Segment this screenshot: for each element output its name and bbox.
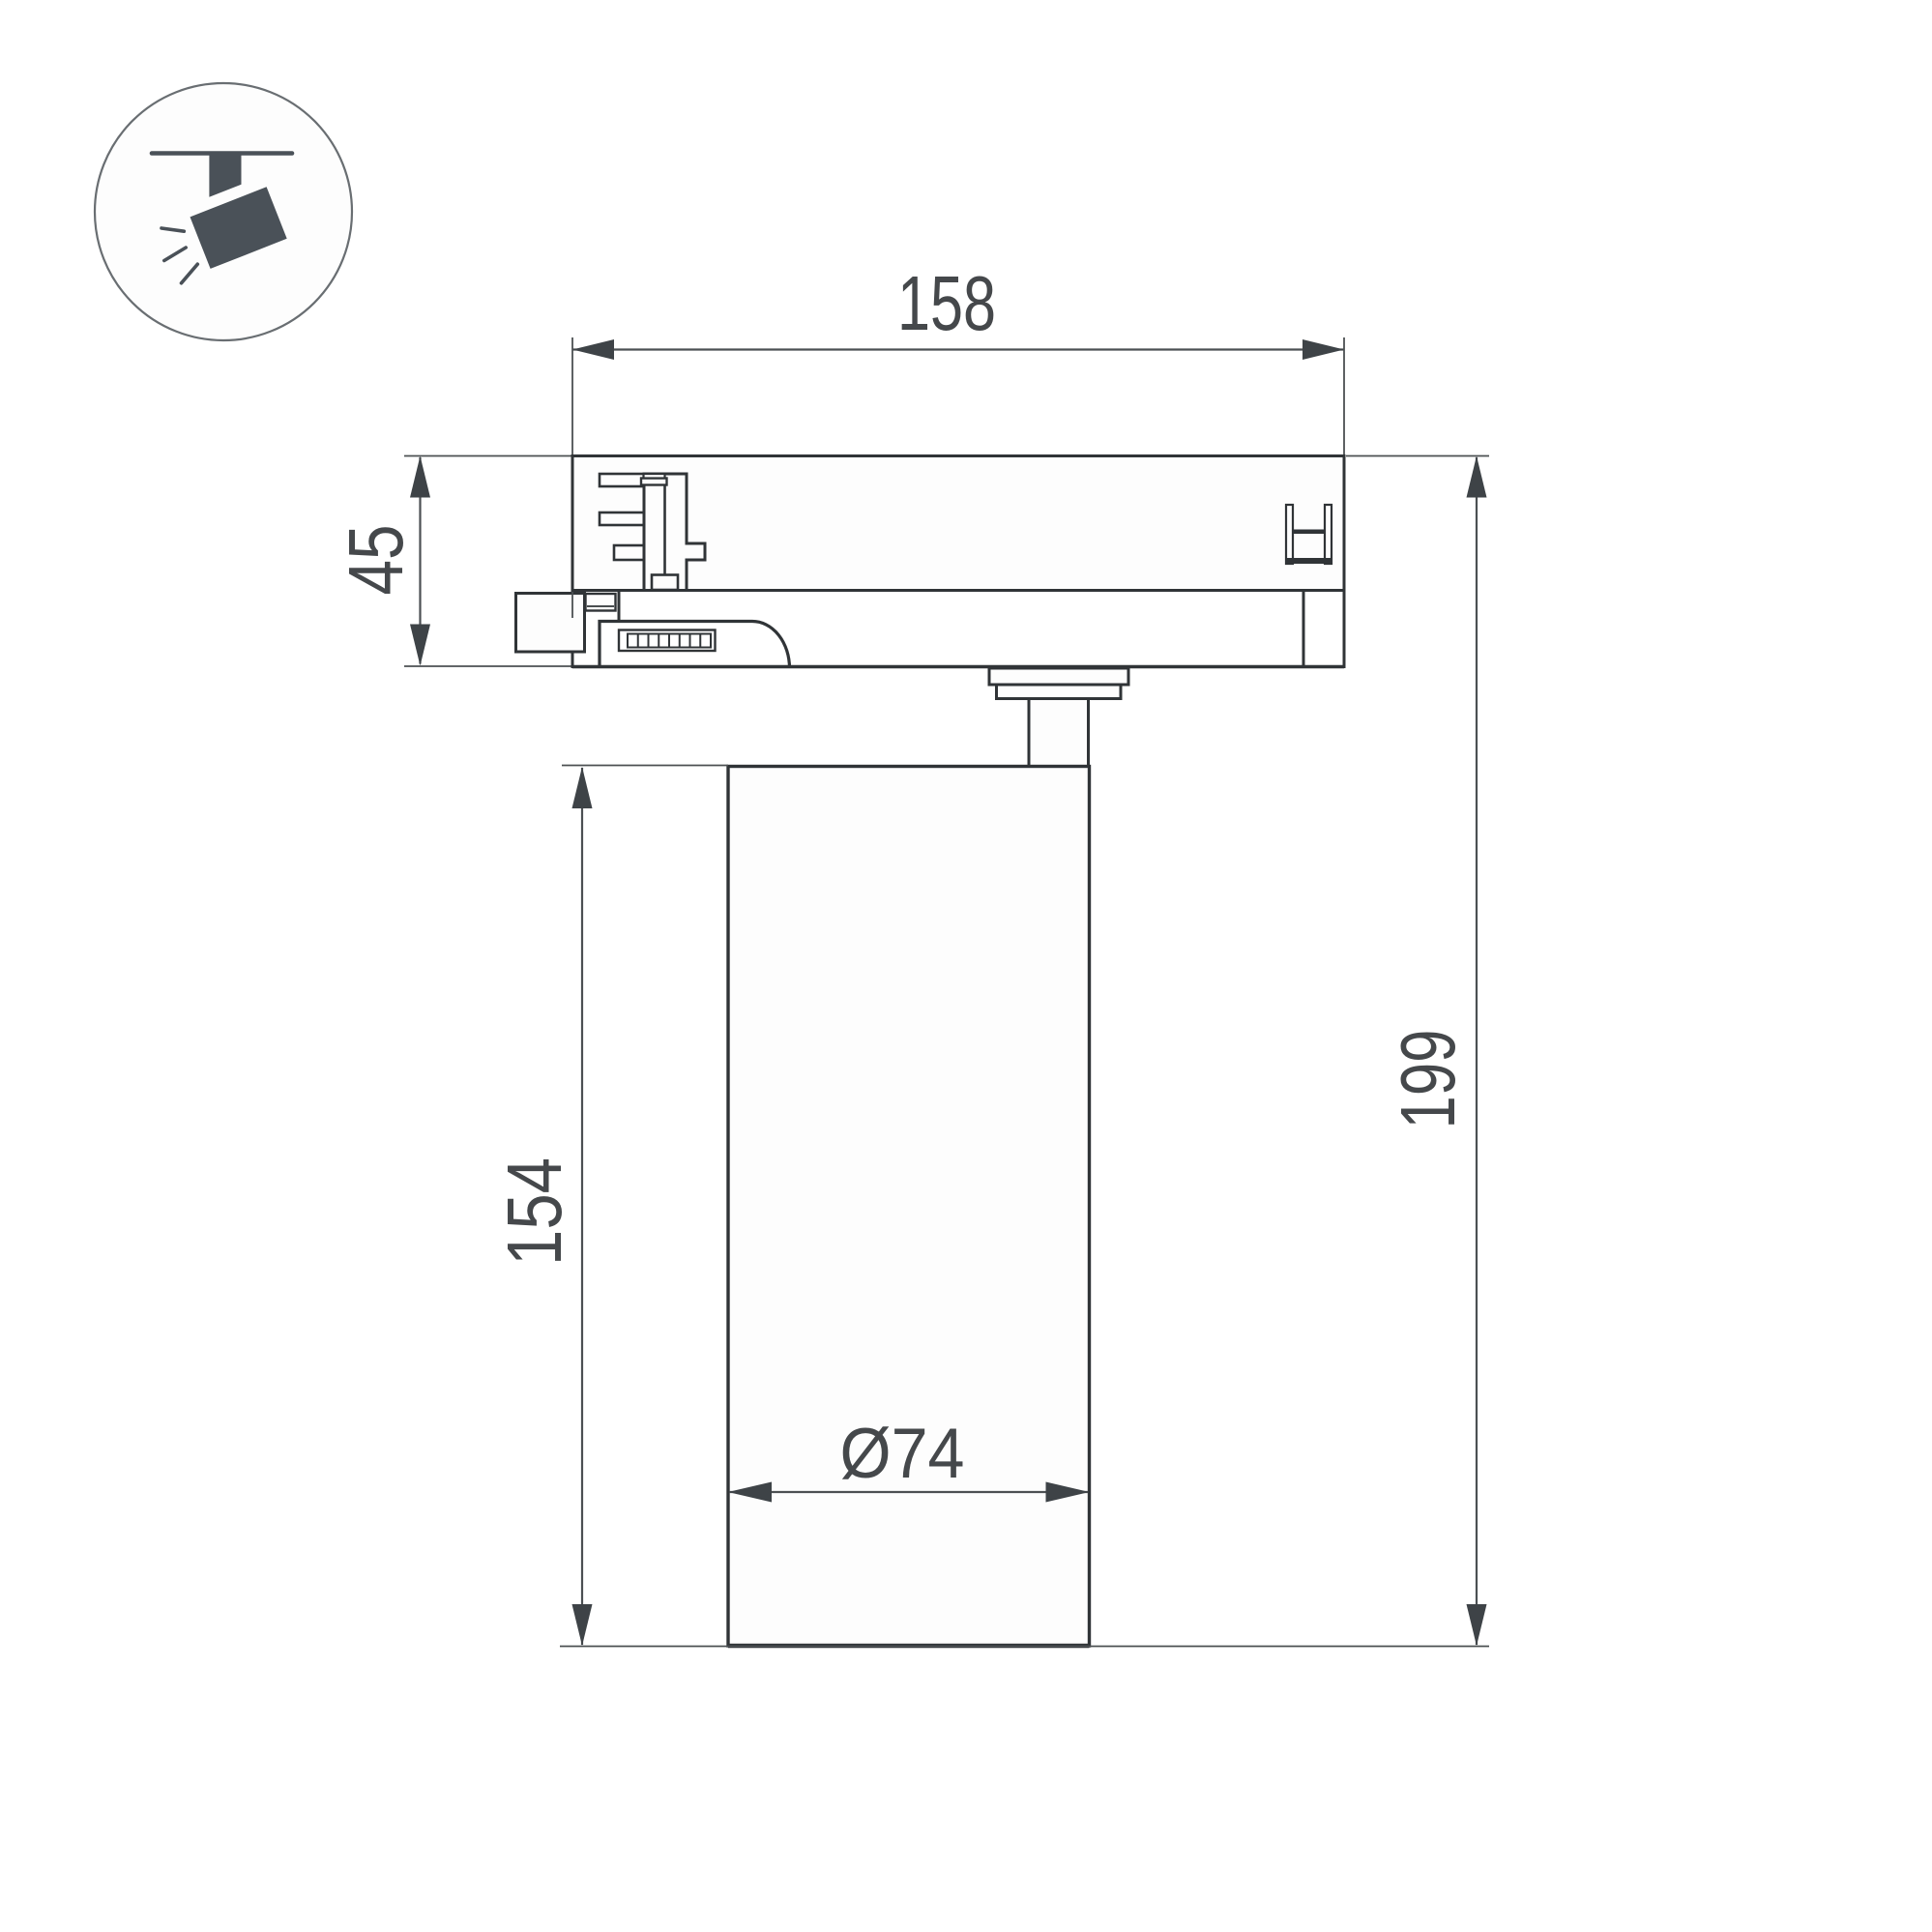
svg-text:Ø74: Ø74 xyxy=(840,1415,965,1493)
svg-text:199: 199 xyxy=(1385,1030,1471,1129)
svg-text:154: 154 xyxy=(491,1157,577,1266)
svg-text:158: 158 xyxy=(897,260,996,346)
svg-text:45: 45 xyxy=(333,525,419,596)
